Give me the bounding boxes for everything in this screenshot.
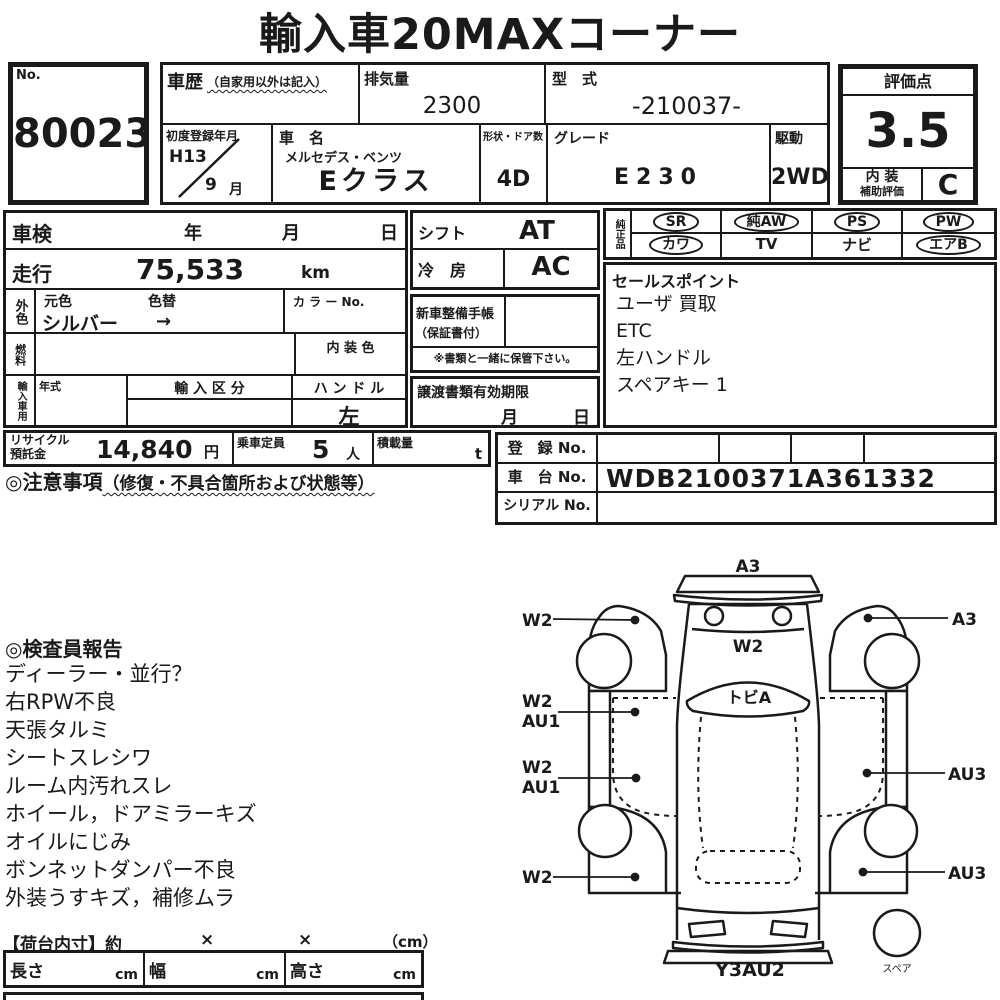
divider [128,398,291,400]
oem-item: TV [756,235,778,253]
color-value: シルバー [42,309,118,336]
diagram-label-rear: Y3AU2 [714,959,785,981]
diagram-label-left-top: W2 [522,611,553,631]
page-title: 輸入車20MAXコーナー [0,0,1000,62]
oem-cell-navi: ナビ [813,234,903,257]
diagram-label-front: A3 [736,557,761,577]
front-bumper [677,576,819,592]
import-row: 輸入車用 年式 輸 入 区 分 ハ ン ド ル 左 [6,376,405,425]
oem-cell-sr: SR [632,211,722,234]
right-sill [886,691,907,807]
history-label: 車歴 [167,68,203,94]
history-cell: 車歴 （自家用以外は記入） [163,65,360,125]
oem-item: SR [653,212,700,232]
sales-point: ユーザ 買取 [616,291,728,318]
mileage-row: 走行 75,533 km [6,250,405,290]
sales-point: 左ハンドル [616,345,728,372]
doors-cell: 形状・ドア数 4D [481,125,548,202]
caution-note: （修復・不具合箇所および状態等） [102,474,374,494]
shaken-day: 日 [380,219,398,245]
color-cell: 元色 色替 シルバー → [36,290,285,334]
displacement-label: 排気量 [364,68,409,89]
wheel-rear-right [865,805,917,857]
interior-rating-grade: C [923,169,973,202]
inspector-report-item: シートスレシワ [5,744,257,772]
recycle-unit: 円 [204,441,219,462]
inspector-report-item: ボンネットダンパー不良 [5,856,257,884]
fuel-label: 燃料 [6,334,36,376]
fuel-value-cell [36,334,296,376]
diagram-label-left-bottom: W2 [522,868,553,888]
wheel-rear-left [579,805,631,857]
oem-item: カワ [649,235,703,255]
door-line-left [698,717,703,848]
dashed-frame-right [819,698,883,816]
leader-line [553,619,635,620]
cargo-height-unit: cm [393,967,416,983]
exterior-color-label: 外色 [6,290,36,334]
original-color-label: 元色 [44,291,72,311]
cargo-length-unit: cm [115,967,138,983]
registration-table: 登 録 No. 車 台 No. WDB2100371A361332 シリアル N… [495,432,997,525]
rear-shelf [677,908,819,913]
import-class-label: 輸 入 区 分 [128,378,291,398]
diagram-label-right-bottom: AU3 [948,864,986,884]
first-registration-month: 9 [205,175,217,195]
sales-point: ETC [616,318,728,345]
cargo-length-cell: 長さ cm [6,953,145,985]
service-book-label-cell: 新車整備手帳 （保証書付） [413,297,506,346]
car-body-left-edge [677,604,689,940]
service-book-line2: （保証書付） [415,324,504,341]
cargo-table-partial-row [3,992,424,1000]
year-type-cell: 年式 [36,376,128,425]
cargo-height-label: 高さ [290,957,324,982]
diagram-label-left-mid2-l2: AU1 [522,778,560,798]
diagram-label-hood: W2 [733,637,764,657]
rating-score: 3.5 [843,96,973,167]
interior-label-line1: 内 装 [843,169,921,185]
serial-no-label: シリアル No. [498,493,598,522]
headlight-right [773,607,791,625]
oem-cell-kawa: カワ [632,234,722,257]
left-sill [589,691,610,807]
inspector-report-item: 右RPW不良 [5,688,257,716]
load-cell: 積載量 t [374,433,488,464]
marker-dot [632,874,639,881]
shaken-row: 車検 年 月 日 [6,213,405,250]
transfer-month: 月 [501,403,518,428]
marker-dot [633,775,640,782]
sales-point: スペアキー 1 [616,372,728,399]
ac-value: AC [505,250,597,287]
shift-value: AT [519,216,555,246]
exterior-color-row: 外色 元色 色替 シルバー → カ ラ ー No. [6,290,405,334]
rear-window [696,851,800,883]
color-no-cell: カ ラ ー No. [285,290,405,334]
taillight-left [689,921,725,937]
diagram-label-windshield: トビA [727,688,772,707]
service-book-line1: 新車整備手帳 [416,303,504,322]
steering-label: ハ ン ド ル [293,378,405,398]
transfer-docs-label: 譲渡書類有効期限 [417,382,529,402]
diagram-label-right-mid: AU3 [948,765,986,785]
capacity-unit: 人 [346,444,360,464]
cargo-unit: （cm） [383,931,438,952]
ac-row: 冷 房 AC [413,250,597,287]
caution-heading: ◎注意事項（修復・不具合箇所および状態等） [5,466,374,495]
cargo-height-cell: 高さ cm [286,953,421,985]
recycle-row: リサイクル 預託金 14,840 円 乗車定員 5 人 積載量 t [3,430,491,467]
oem-item: PS [834,212,880,232]
marker-dot [632,617,639,624]
lot-number-value: 80023 [13,111,144,157]
cargo-width-label: 幅 [149,957,166,982]
sales-points-header: セールスポイント [612,268,994,292]
oem-cell-airbag: エアB [903,234,994,257]
recycle-value: 14,840 [96,435,192,464]
chassis-no-label: 車 台 No. [498,464,598,493]
car-damage-diagram: A3 W2 A3 W2 トビA W2 AU1 W2 AU1 AU3 W2 AU3… [515,545,1000,1000]
rating-box: 評価点 3.5 内 装 補助評価 C [838,64,978,205]
marker-dot [864,770,871,777]
keep-note: ※書類と一緒に保管下さい。 [413,346,597,370]
interior-rating-row: 内 装 補助評価 C [843,167,973,200]
recycle-deposit-cell: リサイクル 預託金 14,840 円 [6,433,234,464]
model-code-label: 型 式 [552,68,597,89]
steering-cell: ハ ン ド ル 左 [293,376,405,425]
model-code-value: -210037- [546,92,827,120]
chassis-no-row: 車 台 No. WDB2100371A361332 [498,464,994,493]
transfer-day: 日 [573,403,590,428]
steering-value: 左 [293,401,405,431]
inspector-report-list: ディーラー・並行？ 右RPW不良 天張タルミ シートスレシワ ルーム内汚れスレ … [5,660,257,912]
displacement-cell: 排気量 2300 [360,65,546,125]
model-code-cell: 型 式 -210037- [546,65,827,125]
divider [293,398,405,400]
oem-cell-pw: PW [903,211,994,234]
marker-dot [632,709,639,716]
inspector-report-item: ルーム内汚れスレ [5,772,257,800]
grade-label: グレード [554,128,610,148]
dashed-frame-left [613,698,677,816]
diagram-label-left-mid1-l1: W2 [522,692,553,712]
marker-dot [860,869,867,876]
inspector-report-item: オイルにじみ [5,828,257,856]
oem-item: 純AW [734,212,800,232]
history-note: （自家用以外は記入） [207,73,327,90]
shaken-label: 車検 [12,218,52,247]
oem-label: 純正品 [606,211,632,257]
interior-label-line2: 補助評価 [843,185,921,198]
inspector-report-item: 天張タルミ [5,716,257,744]
color-no-label: カ ラ ー No. [293,293,364,310]
oem-equipment-table: 純正品 SR 純AW PS PW カワ TV ナビ エアB [603,208,997,260]
drive-value: 2WD [771,165,827,190]
diagram-label-left-mid1-l2: AU1 [522,712,560,732]
load-label: 積載量 [377,434,413,451]
service-book-box: 新車整備手帳 （保証書付） ※書類と一緒に保管下さい。 [410,294,600,373]
transfer-docs-box: 譲渡書類有効期限 月 日 [410,376,600,428]
cargo-times1: × [200,930,214,950]
grade-value: E230 [548,165,769,190]
chassis-no-value: WDB2100371A361332 [606,464,936,493]
wheel-front-left [577,634,631,688]
cargo-length-label: 長さ [10,957,44,982]
registration-no-label: 登 録 No. [498,435,598,464]
cargo-width-unit: cm [256,967,279,983]
capacity-label: 乗車定員 [237,434,285,451]
headlight-left [705,607,723,625]
shift-row: シフト AT [413,213,597,250]
wheel-front-right [865,634,919,688]
import-class-cell: 輸 入 区 分 [128,376,293,425]
ac-label: 冷 房 [413,250,505,287]
oem-item: エアB [916,235,981,255]
drive-cell: 駆動 2WD [771,125,827,202]
divider [863,435,865,464]
diagram-label-left-mid2-l1: W2 [522,758,553,778]
cargo-table: 長さ cm 幅 cm 高さ cm [3,950,424,988]
repaint-arrow: → [156,311,171,332]
mileage-unit: km [301,263,330,283]
repaint-label: 色替 [148,291,176,311]
auction-sheet: 輸入車20MAXコーナー No. 80023 車歴 （自家用以外は記入） 排気量… [0,0,1000,1000]
oem-item: ナビ [842,236,872,254]
model-name: Eクラス [273,159,479,198]
cargo-header-row: 【荷台内寸】約 × × （cm） [3,930,443,950]
cargo-width-cell: 幅 cm [145,953,286,985]
fuel-row: 燃料 内 装 色 [6,334,405,376]
taillight-right [771,921,807,937]
shift-ac-box: シフト AT 冷 房 AC [410,210,600,290]
divider [790,435,792,464]
rating-header: 評価点 [843,69,973,96]
door-line-right [793,717,798,848]
shaken-year: 年 [184,219,202,245]
interior-color-cell: 内 装 色 [296,334,405,376]
sales-points-list: ユーザ 買取 ETC 左ハンドル スペアキー 1 [616,291,728,399]
cargo-times2: × [298,930,312,950]
first-registration-cell: 初度登録年月 H13 9 月 [163,125,273,202]
spare-tire [874,910,920,956]
inspector-report-item: ディーラー・並行？ [5,660,257,688]
car-name-cell: 車 名 メルセデス・ベンツ Eクラス [273,125,481,202]
interior-rating-label: 内 装 補助評価 [843,169,923,202]
car-name-label: 車 名 [279,127,324,148]
year-type-label: 年式 [39,378,61,394]
shift-label: シフト [418,220,466,244]
oem-cell-tv: TV [722,234,813,257]
inspector-report-header: ◎検査員報告 [5,633,122,662]
lot-number-box: No. 80023 [8,62,149,205]
drive-label: 駆動 [775,128,803,148]
marker-dot [865,615,872,622]
oem-cell-aw: 純AW [722,211,813,234]
oem-cell-ps: PS [813,211,903,234]
vehicle-info-table: 車歴 （自家用以外は記入） 排気量 2300 型 式 -210037- 初度登録… [160,62,830,205]
caution-header: ◎注意事項 [5,470,102,494]
load-unit: t [475,445,482,463]
inspector-report-item: 外装うすキズ，補修ムラ [5,884,257,912]
registration-no-row: 登 録 No. [498,435,994,464]
divider [718,435,720,464]
left-detail-table: 車検 年 月 日 走行 75,533 km 外色 元色 色替 シルバー → カ … [3,210,408,428]
diagram-label-right-top: A3 [952,610,977,630]
displacement-value: 2300 [360,93,544,119]
doors-value: 4D [481,167,546,192]
month-suffix: 月 [229,179,243,199]
serial-no-row: シリアル No. [498,493,994,522]
diagram-label-spare: スペア [882,964,911,975]
lot-number-label: No. [16,68,41,83]
capacity-cell: 乗車定員 5 人 [234,433,374,464]
oem-item: PW [923,212,975,232]
slash-divider [163,125,273,202]
car-body-right-edge [807,604,819,940]
sales-points-box: セールスポイント ユーザ 買取 ETC 左ハンドル スペアキー 1 [603,262,997,428]
interior-color-label: 内 装 色 [296,337,405,356]
mileage-label: 走行 [12,258,52,287]
grade-cell: グレード E230 [548,125,771,202]
import-use-label: 輸入車用 [6,376,36,425]
mileage-value: 75,533 [136,253,244,286]
capacity-value: 5 [312,435,329,464]
doors-label: 形状・ドア数 [483,128,543,143]
inspector-report-item: ホイール，ドアミラーキズ [5,800,257,828]
shaken-month: 月 [282,219,300,245]
front-panel [689,604,807,632]
